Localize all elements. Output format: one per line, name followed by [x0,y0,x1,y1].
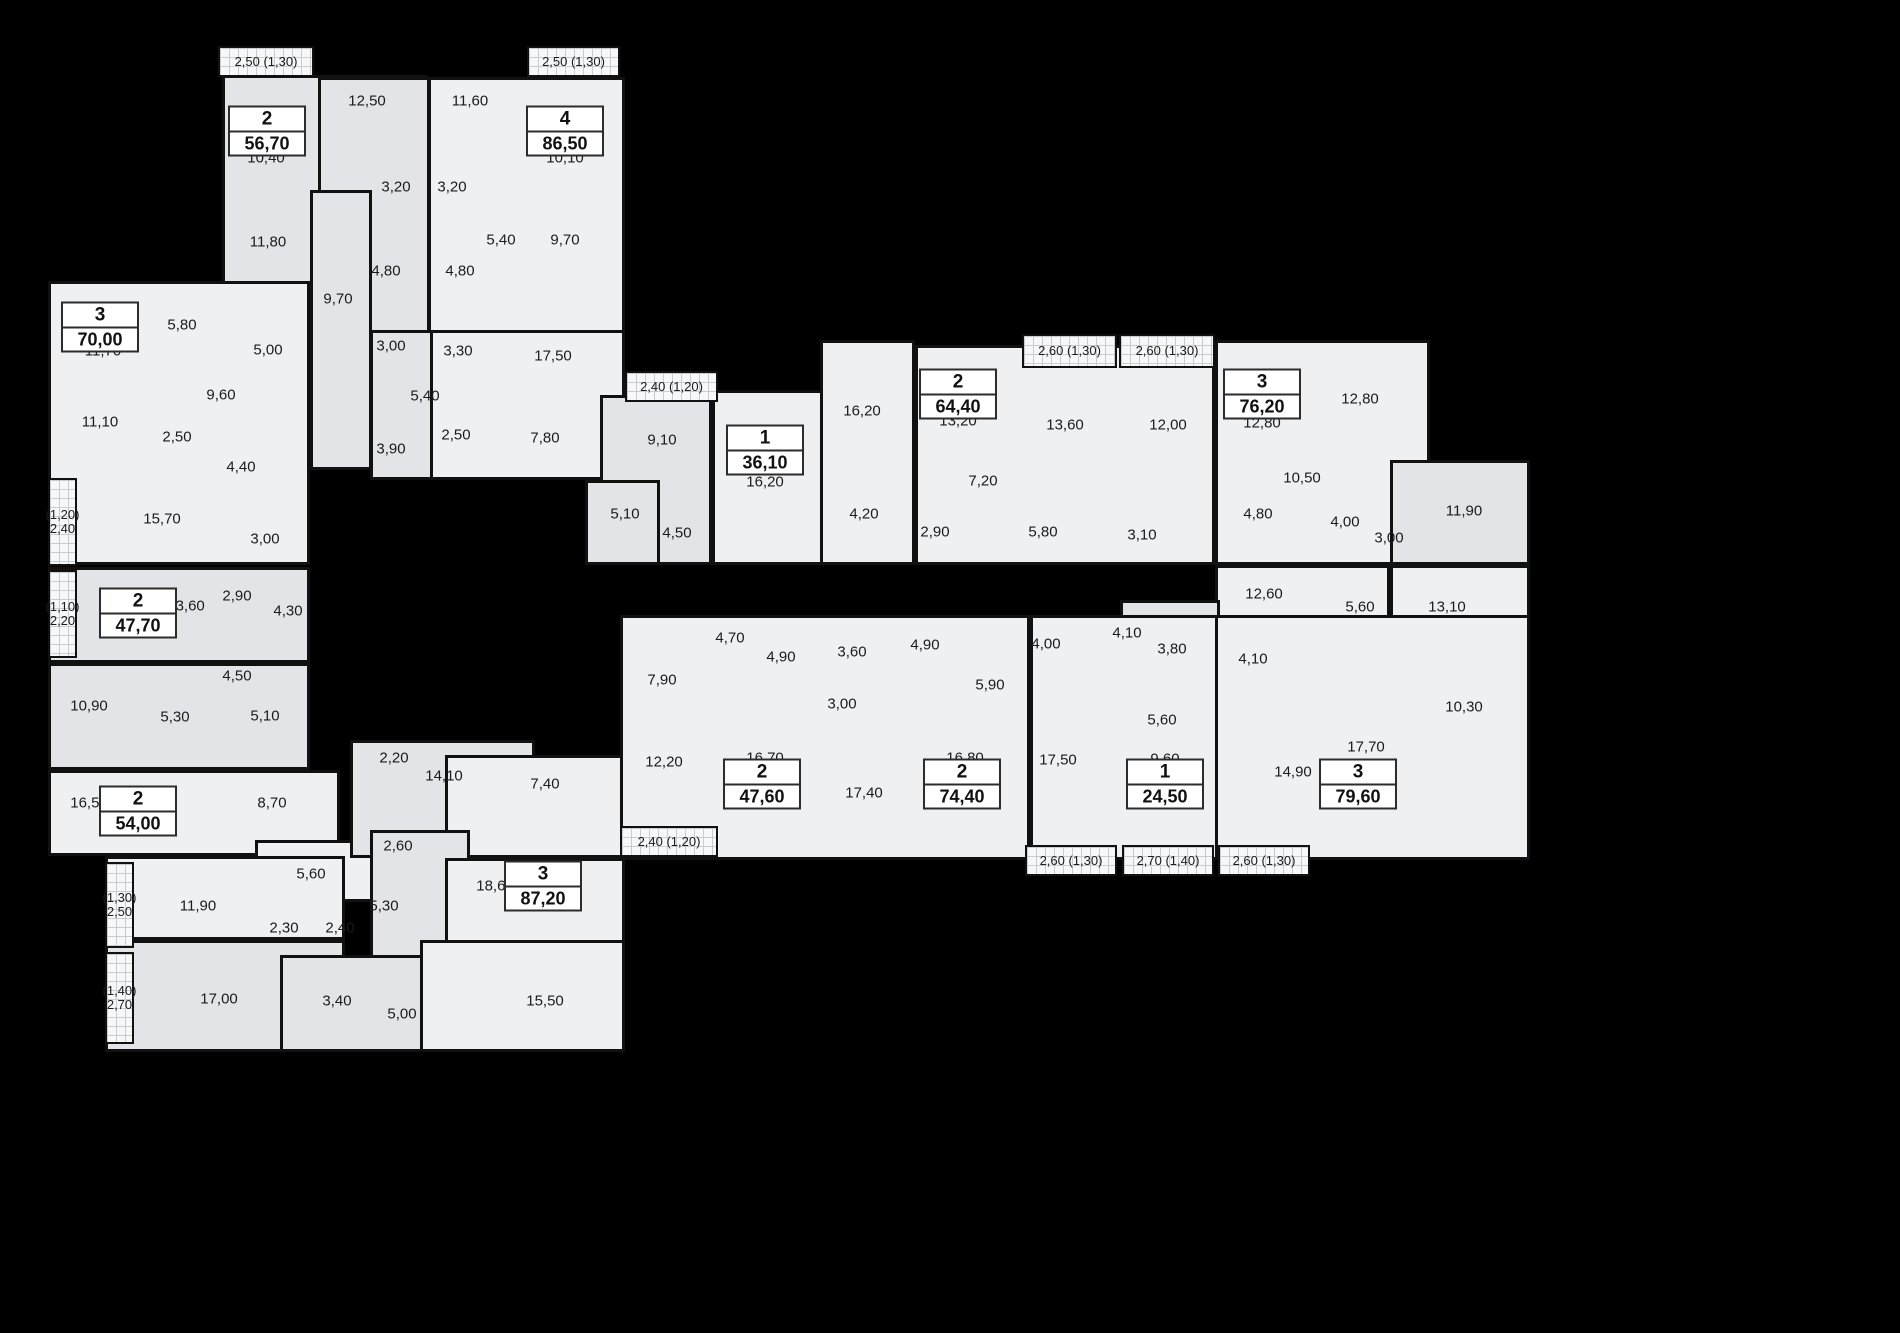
room-area-label: 3,20 [437,179,466,196]
room-area-label: 2,20 [379,750,408,767]
balcony-area-text: 2,40 [50,521,75,536]
room-area-label: 12,20 [645,754,683,771]
room-area-label: 4,20 [849,506,878,523]
room-area-label: 2,30 [269,920,298,937]
room-area-label: 15,70 [143,511,181,528]
balcony-area: 2,50 (1,30) [527,46,620,77]
room-area-label: 10,50 [1283,470,1321,487]
room-area-label: 4,70 [715,630,744,647]
floor-area [445,755,625,858]
balcony-area: 2,70 (1,40) [1122,845,1214,876]
balcony-area: 2,50 (1,30) [218,46,314,77]
apartment-total-area: 56,70 [230,133,304,155]
balcony-area-label: 2,70 (1,40) [1137,854,1200,868]
apartment-total-area: 24,50 [1128,786,1202,808]
apartment-total-area: 36,10 [728,452,802,474]
room-area-label: 2,90 [920,524,949,541]
room-area-label: 3,80 [1157,641,1186,658]
room-area-label: 9,70 [550,232,579,249]
balcony-area-text: 2,50 (1,30) [235,54,298,69]
floor-area [620,615,1030,860]
room-area-label: 4,10 [1112,625,1141,642]
room-area-label: 4,30 [273,603,302,620]
balcony-area: 2,60 (1,30) [1119,334,1215,368]
apartment-total-area: 47,70 [101,615,175,637]
room-area-label: 2,60 [383,838,412,855]
apartment-badge: 379,60 [1319,759,1397,810]
room-area-label: 14,90 [1274,764,1312,781]
room-area-label: 8,70 [257,795,286,812]
room-area-label: 10,90 [70,698,108,715]
room-area-label: 5,40 [410,388,439,405]
balcony-area-text: 2,50 [107,904,132,919]
balcony-area-text: 2,50 (1,30) [542,54,605,69]
room-area-label: 17,40 [845,785,883,802]
apartment-rooms-count: 1 [1128,761,1202,786]
room-area-label: 4,10 [1238,651,1267,668]
balcony-area-label: 2,60 (1,30) [1136,344,1199,358]
balcony-area-text: (1,10) [46,599,80,614]
apartment-badge: 124,50 [1126,759,1204,810]
apartment-rooms-count: 2 [230,108,304,133]
apartment-badge: 256,70 [228,106,306,157]
apartment-rooms-count: 1 [728,427,802,452]
floor-area [48,567,310,663]
apartment-total-area: 54,00 [101,813,175,835]
apartment-badge: 274,40 [923,759,1001,810]
apartment-badge: 254,00 [99,786,177,837]
apartment-rooms-count: 3 [63,304,137,329]
apartment-rooms-count: 4 [528,108,602,133]
apartment-rooms-count: 3 [1225,371,1299,396]
room-area-label: 7,80 [530,430,559,447]
balcony-area-label: 2,50 (1,30) [542,55,605,69]
floor-area [420,940,625,1052]
room-area-label: 7,90 [647,672,676,689]
room-area-label: 14,10 [425,768,463,785]
room-area-label: 2,50 [162,429,191,446]
room-area-label: 3,00 [827,696,856,713]
balcony-area-label: 2,60 (1,30) [1038,344,1101,358]
apartment-badge: 264,40 [919,369,997,420]
room-area-label: 5,30 [160,709,189,726]
room-area-label: 13,10 [1428,599,1466,616]
room-area-label: 9,60 [206,387,235,404]
room-area-label: 9,70 [323,291,352,308]
floor-area [585,480,660,565]
balcony-area-label: (1,20)2,40 [46,508,80,536]
apartment-badge: 136,10 [726,425,804,476]
room-area-label: 5,80 [1028,524,1057,541]
room-area-label: 13,60 [1046,417,1084,434]
balcony-area-text: 2,40 (1,20) [638,834,701,849]
room-area-label: 5,90 [975,677,1004,694]
balcony-area-label: 2,60 (1,30) [1040,854,1103,868]
balcony-area-text: (1,30) [103,890,137,905]
room-area-label: 4,00 [1031,636,1060,653]
balcony-area: (1,30)2,50 [105,862,134,948]
room-area-label: 7,40 [530,776,559,793]
apartment-total-area: 74,40 [925,786,999,808]
balcony-area-label: 2,40 (1,20) [640,380,703,394]
room-area-label: 3,00 [376,338,405,355]
apartment-rooms-count: 2 [925,761,999,786]
balcony-area-label: (1,10)2,20 [46,600,80,628]
room-area-label: 4,80 [371,263,400,280]
balcony-area-label: 2,40 (1,20) [638,835,701,849]
apartment-rooms-count: 2 [101,590,175,615]
room-area-label: 5,80 [167,317,196,334]
room-area-label: 3,00 [1374,530,1403,547]
room-area-label: 4,90 [910,637,939,654]
room-area-label: 12,80 [1341,391,1379,408]
balcony-area-text: (1,40) [103,983,137,998]
room-area-label: 4,80 [445,263,474,280]
apartment-total-area: 79,60 [1321,786,1395,808]
balcony-area: 2,40 (1,20) [620,826,718,857]
room-area-label: 11,80 [250,234,286,251]
floor-plan-canvas: 2,50 (1,30)2,50 (1,30)2,40 (1,20)2,60 (1… [0,0,1900,1333]
apartment-rooms-count: 2 [921,371,995,396]
apartment-rooms-count: 3 [506,863,580,888]
room-area-label: 10,30 [1445,699,1483,716]
balcony-area: 2,40 (1,20) [625,371,718,402]
apartment-badge: 247,70 [99,588,177,639]
room-area-label: 3,00 [250,531,279,548]
room-area-label: 16,20 [746,474,784,491]
room-area-label: 4,50 [222,668,251,685]
apartment-rooms-count: 2 [725,761,799,786]
balcony-area: (1,40)2,70 [105,952,134,1044]
balcony-area-text: 2,70 (1,40) [1137,853,1200,868]
room-area-label: 3,20 [381,179,410,196]
balcony-area: 2,60 (1,30) [1022,334,1117,368]
apartment-rooms-count: 2 [101,788,175,813]
apartment-total-area: 86,50 [528,133,602,155]
room-area-label: 5,30 [369,898,398,915]
balcony-area-text: 2,70 [107,997,132,1012]
apartment-badge: 387,20 [504,861,582,912]
room-area-label: 5,00 [387,1006,416,1023]
apartment-badge: 247,60 [723,759,801,810]
balcony-area-text: 2,60 (1,30) [1136,343,1199,358]
balcony-area: (1,10)2,20 [48,570,77,658]
apartment-total-area: 64,40 [921,396,995,418]
balcony-area-label: (1,40)2,70 [103,984,137,1012]
balcony-area: (1,20)2,40 [48,478,77,566]
floor-area [310,190,372,470]
room-area-label: 12,60 [1245,586,1283,603]
room-area-label: 16,20 [843,403,881,420]
balcony-area-text: (1,20) [46,507,80,522]
room-area-label: 5,40 [486,232,515,249]
room-area-label: 5,60 [296,866,325,883]
room-area-label: 3,40 [322,993,351,1010]
room-area-label: 4,80 [1243,506,1272,523]
room-area-label: 17,50 [534,348,572,365]
room-area-label: 17,50 [1039,752,1077,769]
room-area-label: 3,30 [443,343,472,360]
balcony-area-label: 2,50 (1,30) [235,55,298,69]
room-area-label: 4,00 [1330,514,1359,531]
room-area-label: 2,50 [441,427,470,444]
apartment-badge: 376,20 [1223,369,1301,420]
balcony-area-text: 2,20 [50,613,75,628]
room-area-label: 4,50 [662,525,691,542]
room-area-label: 5,60 [1345,599,1374,616]
room-area-label: 2,40 [325,920,354,937]
room-area-label: 11,60 [452,93,488,110]
apartment-badge: 486,50 [526,106,604,157]
room-area-label: 3,90 [376,441,405,458]
room-area-label: 9,10 [647,432,676,449]
room-area-label: 5,10 [610,506,639,523]
room-area-label: 5,60 [1147,712,1176,729]
room-area-label: 12,50 [348,93,386,110]
apartment-total-area: 70,00 [63,329,137,351]
apartment-total-area: 47,60 [725,786,799,808]
balcony-area-label: (1,30)2,50 [103,891,137,919]
room-area-label: 4,40 [226,459,255,476]
apartment-badge: 370,00 [61,302,139,353]
room-area-label: 17,70 [1347,739,1385,756]
apartment-total-area: 76,20 [1225,396,1299,418]
room-area-label: 15,50 [526,993,564,1010]
room-area-label: 12,00 [1149,417,1187,434]
room-area-label: 5,00 [253,342,282,359]
apartment-total-area: 87,20 [506,888,580,910]
floor-area [820,340,915,565]
balcony-area-text: 2,60 (1,30) [1040,853,1103,868]
balcony-area-label: 2,60 (1,30) [1233,854,1296,868]
balcony-area: 2,60 (1,30) [1025,845,1117,876]
balcony-area: 2,60 (1,30) [1218,845,1310,876]
room-area-label: 11,90 [1446,503,1482,520]
room-area-label: 5,10 [250,708,279,725]
room-area-label: 4,90 [766,649,795,666]
balcony-area-text: 2,40 (1,20) [640,379,703,394]
room-area-label: 11,90 [180,898,216,915]
room-area-label: 3,60 [837,644,866,661]
room-area-label: 2,90 [222,588,251,605]
room-area-label: 17,00 [200,991,238,1008]
room-area-label: 3,10 [1127,527,1156,544]
room-area-label: 7,20 [968,473,997,490]
balcony-area-text: 2,60 (1,30) [1233,853,1296,868]
apartment-rooms-count: 3 [1321,761,1395,786]
balcony-area-text: 2,60 (1,30) [1038,343,1101,358]
room-area-label: 11,10 [82,414,118,431]
